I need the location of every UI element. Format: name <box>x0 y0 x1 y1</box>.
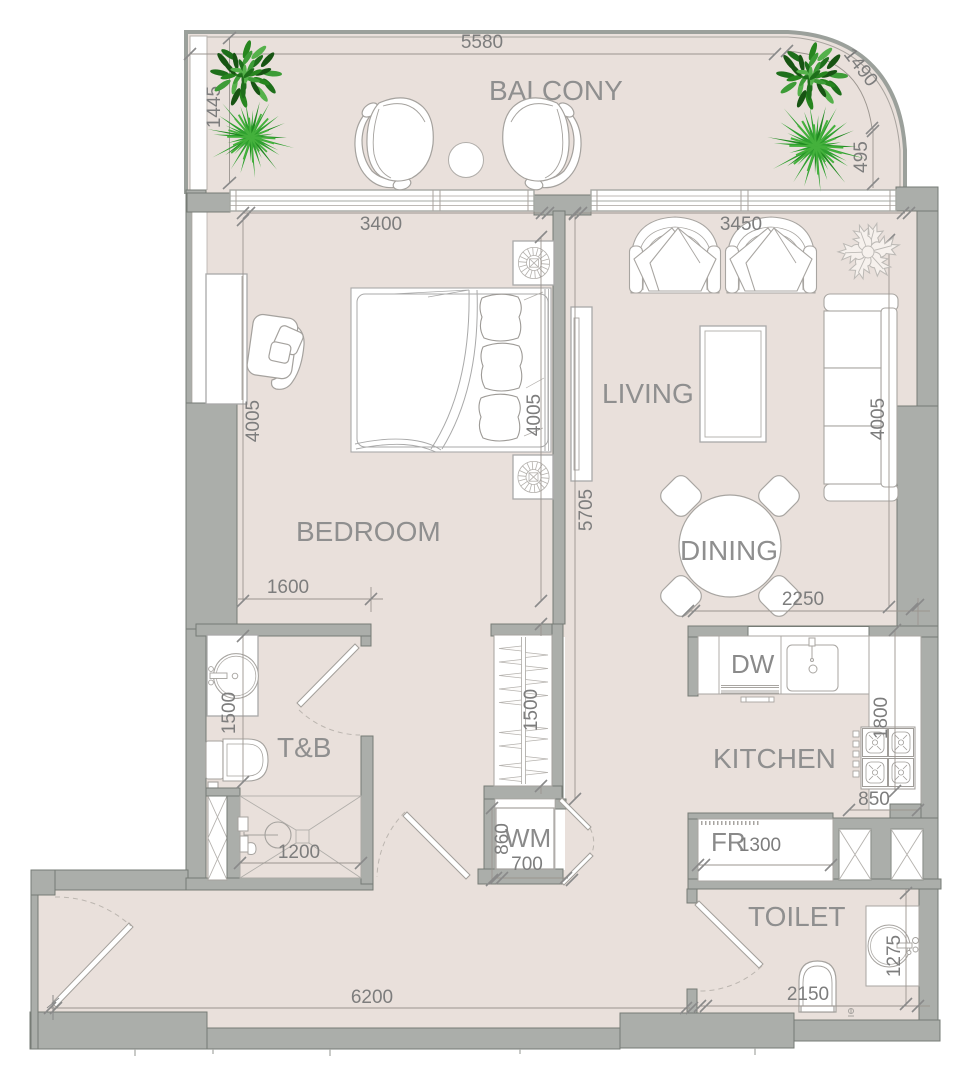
svg-text:BEDROOM: BEDROOM <box>296 516 441 547</box>
svg-text:1200: 1200 <box>278 842 320 863</box>
svg-text:5705: 5705 <box>576 489 597 531</box>
svg-text:1300: 1300 <box>739 835 781 856</box>
svg-text:5580: 5580 <box>461 32 503 53</box>
svg-text:4005: 4005 <box>524 394 545 436</box>
svg-text:3450: 3450 <box>720 214 762 235</box>
svg-text:LIVING: LIVING <box>602 378 694 409</box>
svg-text:1500: 1500 <box>219 692 240 734</box>
svg-text:6200: 6200 <box>351 987 393 1008</box>
svg-text:495: 495 <box>851 141 872 173</box>
svg-text:TOILET: TOILET <box>748 901 846 932</box>
svg-text:2150: 2150 <box>787 984 829 1005</box>
svg-text:T&B: T&B <box>277 732 331 763</box>
svg-text:1275: 1275 <box>884 935 905 977</box>
svg-text:1445: 1445 <box>204 86 225 128</box>
svg-text:KITCHEN: KITCHEN <box>713 743 836 774</box>
svg-text:700: 700 <box>511 854 543 875</box>
svg-text:1800: 1800 <box>871 697 892 739</box>
svg-text:4005: 4005 <box>868 398 889 440</box>
svg-text:DINING: DINING <box>680 535 778 566</box>
svg-text:850: 850 <box>858 789 890 810</box>
svg-text:DW: DW <box>731 649 775 679</box>
svg-text:3400: 3400 <box>360 214 402 235</box>
svg-text:BALCONY: BALCONY <box>489 75 623 106</box>
svg-text:2250: 2250 <box>782 589 824 610</box>
svg-text:860: 860 <box>492 823 513 855</box>
svg-text:4005: 4005 <box>243 400 264 442</box>
svg-text:1500: 1500 <box>521 689 542 731</box>
svg-text:1600: 1600 <box>267 577 309 598</box>
